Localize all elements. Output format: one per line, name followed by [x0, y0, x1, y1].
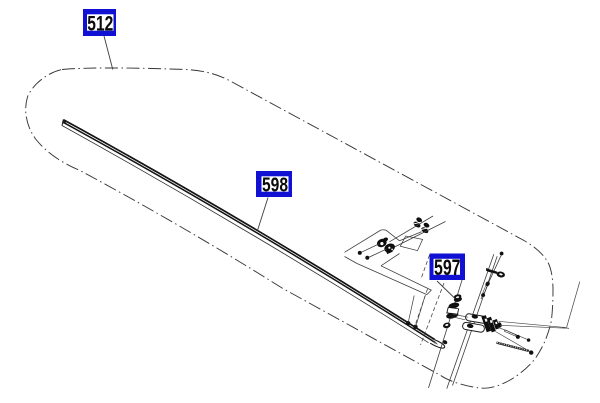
svg-text:598: 598 [262, 174, 288, 197]
svg-text:512: 512 [87, 11, 113, 35]
svg-text:597: 597 [434, 255, 461, 280]
